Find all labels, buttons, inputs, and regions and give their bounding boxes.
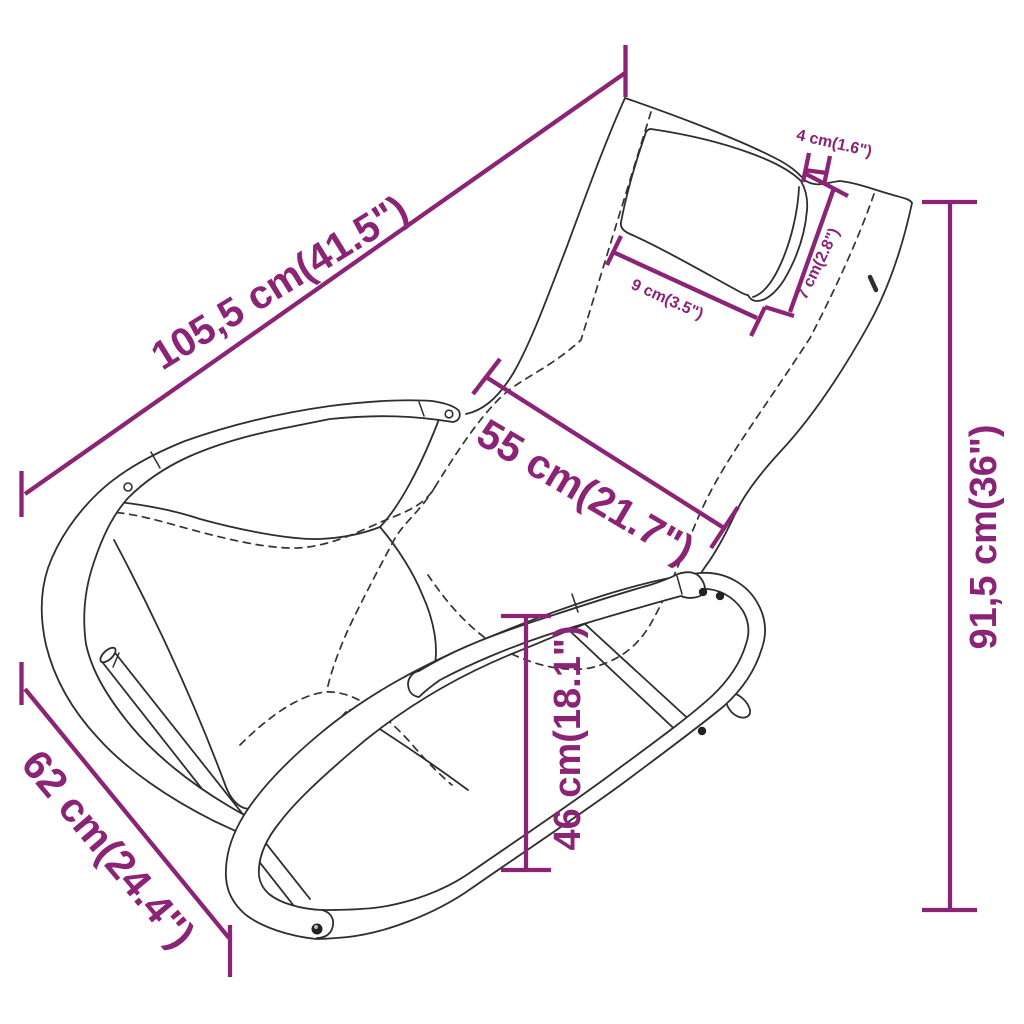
svg-text:91,5 cm(36"): 91,5 cm(36") bbox=[963, 424, 1005, 649]
svg-text:46 cm(18.1"): 46 cm(18.1") bbox=[547, 625, 589, 850]
